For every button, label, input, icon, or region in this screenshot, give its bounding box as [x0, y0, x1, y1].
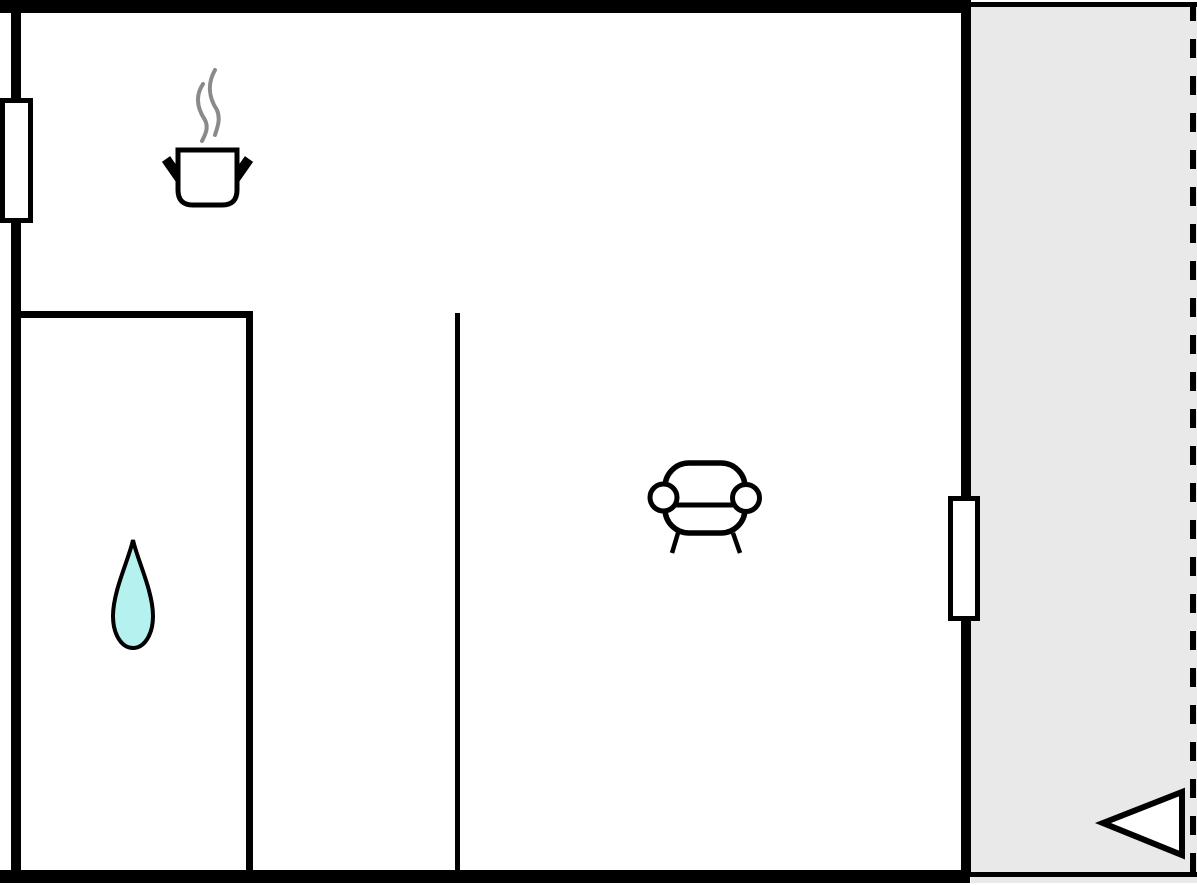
- window-right: [948, 496, 980, 621]
- cooking-pot-icon: [160, 62, 256, 212]
- entrance-arrow-icon: [1095, 785, 1190, 863]
- floorplan: [0, 0, 1197, 885]
- sofa-icon: [645, 455, 765, 560]
- pot-body: [178, 150, 237, 205]
- steam-line-right: [210, 70, 219, 135]
- sofa-leg-left: [672, 533, 678, 553]
- wall-bathroom-top: [16, 311, 253, 318]
- sofa-armrest-right: [733, 485, 760, 512]
- wall-hall-divider: [455, 313, 460, 883]
- terrace-dashed-boundary: [1190, 2, 1196, 877]
- wall-bottom: [0, 870, 970, 883]
- wall-right: [961, 0, 971, 877]
- window-left: [0, 98, 33, 223]
- sofa-leg-right: [733, 533, 740, 553]
- sofa-armrest-left: [650, 484, 677, 511]
- water-drop-shape: [113, 540, 153, 648]
- terrace-area-foot: [971, 877, 1197, 883]
- wall-bathroom-right: [246, 311, 253, 883]
- water-drop-icon: [108, 535, 158, 653]
- entrance-arrow-triangle: [1103, 792, 1182, 855]
- wall-top: [0, 0, 970, 13]
- steam-line-left: [198, 84, 207, 141]
- terrace-area: [966, 2, 1197, 877]
